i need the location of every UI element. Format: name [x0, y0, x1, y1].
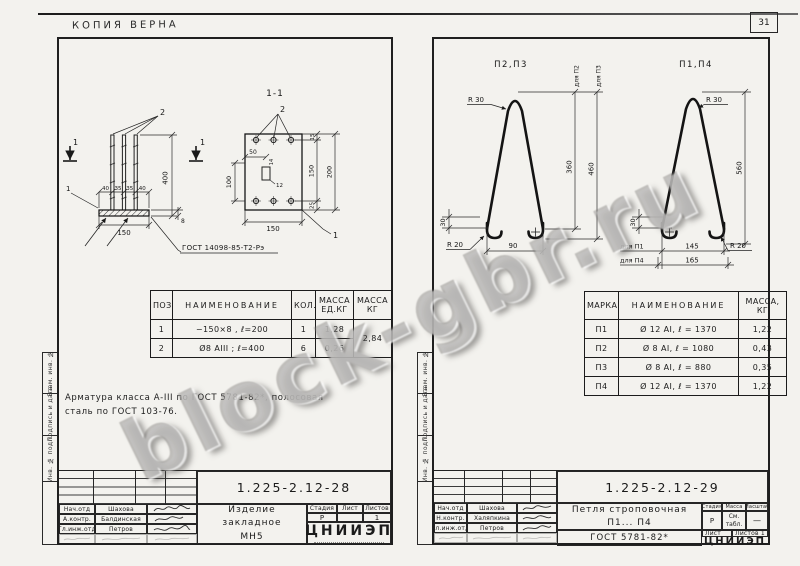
cell-pos: 1 [151, 320, 173, 339]
weld-note: ГОСТ 14098-85-Т2-Рэ [182, 244, 264, 252]
dim-30-left-lines [442, 209, 488, 234]
signer-role: Н.контр. [434, 513, 467, 523]
callout-plate: 1 [66, 185, 70, 193]
sheets-value: 1 [363, 513, 391, 522]
loop-right-label: П1,П4 [679, 60, 713, 70]
signature [147, 514, 197, 524]
drawing-title-line2: МН5 [240, 531, 263, 545]
scanned-drawing-sheet: КОПИЯ ВЕРНА 31 [0, 0, 800, 566]
signature [517, 513, 557, 523]
dim-400: 400 [162, 171, 170, 184]
left-margin-stamp: Взам. инв. № Подпись и дата Инв. № подл. [42, 352, 57, 545]
signature-scribble [521, 504, 553, 512]
table-row: П4 Ø 12 АI, ℓ = 1370 1,22 [585, 377, 787, 396]
cell-mark: П3 [585, 358, 619, 377]
dim-14: 14 [269, 159, 275, 165]
dim-360: 360 [566, 160, 574, 173]
signature-grid: Нач.отд Шахова А.контр. Балдинская Гл.ин… [59, 504, 197, 544]
col-header-qty: КОЛ. [292, 291, 316, 320]
material-note-line2: сталь по ГОСТ 103-76. [65, 405, 385, 419]
signature [517, 523, 557, 533]
embedded-part-drawing: 2 1 1 400 [59, 39, 395, 279]
faint-scribble [101, 536, 141, 542]
drawing-title-cell: Петля строповочная П1... П4 [557, 503, 702, 530]
cell-mass: 0,35 [739, 358, 787, 377]
drawing-title-cell: Изделие закладное МН5 [197, 504, 307, 544]
margin-label-podpis: Подпись и дата [47, 386, 54, 441]
dim-12-tick [270, 180, 275, 184]
signer-name: Шахова [467, 503, 517, 513]
dim-40b: 40 [139, 186, 146, 192]
faint-row-cell [95, 534, 147, 544]
signer-name: Петров [467, 523, 517, 533]
dim-460: 460 [588, 162, 596, 175]
scale-value: — [746, 511, 768, 530]
sheet-number-box: 31 [750, 12, 778, 33]
stage-value: Р [307, 513, 337, 522]
cell-name: Ø8 АIII ; ℓ=400 [173, 339, 292, 358]
anchor-bars [110, 135, 139, 210]
signature-grid: Нач.отд Шахова Н.контр. Халяпкина Гл.инж… [434, 503, 557, 546]
radius-30-left: R 30 [468, 96, 484, 104]
org-name: ЦНИИЭП [305, 523, 393, 539]
table-row: П3 Ø 8 АI, ℓ = 880 0,35 [585, 358, 787, 377]
signer-role: Нач.отд [59, 504, 95, 514]
mass-value: См. табл. [722, 511, 746, 530]
cell-mass: 0,43 [739, 339, 787, 358]
dim-150-right: 150 [308, 165, 316, 177]
right-page-frame: П2,П3 П1,П4 R 30 360 [432, 37, 770, 545]
cell-name: Ø 12 АI, ℓ = 1370 [619, 320, 739, 339]
dim-560-lines [702, 89, 751, 247]
doc-number-cell: 1.225-2.12-28 [197, 471, 391, 504]
revision-grid [434, 471, 557, 504]
dim-165: 165 [685, 257, 698, 265]
dim-145: 145 [685, 243, 698, 251]
loop-left-hook-cross [531, 228, 540, 237]
cell-total-mass: 2,84 [354, 320, 392, 358]
plan-callout-plate-leader [302, 210, 331, 234]
signature-scribble [521, 514, 553, 522]
dim-35a: 35 [115, 186, 122, 192]
loop-left-label: П2,П3 [494, 60, 528, 70]
org-fineprint [314, 539, 384, 543]
cell-unit-mass: 1,28 [316, 320, 354, 339]
margin-label-inv: Инв. № подл. [422, 435, 429, 482]
radius-20-left-leader [470, 236, 484, 250]
dim-200: 200 [326, 166, 334, 178]
faint-scribble [522, 535, 552, 541]
table-row: П2 Ø 8 АI, ℓ = 1080 0,43 [585, 339, 787, 358]
loop-right-hook-cross [665, 228, 674, 237]
drawing-title-line1: Изделие закладное [198, 504, 306, 531]
radius-20-left: R 20 [447, 241, 463, 249]
dim-150-bottom: 150 [266, 225, 279, 233]
loop-right-wire [662, 99, 724, 238]
radius-30-left-leader [491, 105, 506, 110]
drawing-title-line1: Петля строповочная [572, 504, 687, 517]
dim-90: 90 [509, 242, 518, 250]
org-cell: ЦНИИЭП [702, 537, 768, 546]
cell-name: Ø 8 АI, ℓ = 1080 [619, 339, 739, 358]
section-view-title: 1-1 [266, 89, 284, 99]
dim-15: 15 [310, 133, 316, 140]
dim-150-elev-lines [96, 216, 152, 229]
plan-center-hole [262, 167, 270, 180]
signature [517, 503, 557, 513]
plan-callout-bars: 2 [280, 105, 285, 114]
table-row: 1 −150×8 , ℓ=200 1 1,28 2,84 [151, 320, 392, 339]
faint-row-cell [434, 533, 467, 543]
material-note-line1: Арматура класса А-III по ГОСТ 5781-82*, … [65, 391, 385, 405]
cell-mass: 1,22 [739, 377, 787, 396]
faint-scribble [472, 535, 512, 541]
cell-qty: 6 [292, 339, 316, 358]
dim-460-for-label: для П3 [596, 65, 603, 87]
faint-row-cell [467, 533, 517, 543]
dim-8-lines [151, 207, 183, 220]
sheets-label: Листов [363, 504, 391, 513]
right-marks-table: МАРКА НАИМЕНОВАНИЕ МАССА, КГ П1 Ø 12 АI,… [584, 291, 787, 396]
col-header-mass: МАССА КГ [354, 291, 392, 320]
signer-name: Халяпкина [467, 513, 517, 523]
col-header-mass: МАССА, КГ [739, 292, 787, 320]
doc-number: 1.225-2.12-28 [237, 480, 352, 495]
faint-row-cell [59, 534, 95, 544]
cell-mass: 1,22 [739, 320, 787, 339]
dim-8: 8 [181, 218, 185, 225]
col-header-pos: ПОЗ. [151, 291, 173, 320]
dim-100-lines [231, 160, 245, 204]
mass-label: Масса [722, 503, 746, 511]
dim-165-for-label: для П4 [620, 257, 644, 265]
scale-label: Масштаб [746, 503, 768, 511]
gost-cell: ГОСТ 5781-82* [557, 530, 702, 546]
dim-50: 50 [249, 149, 257, 156]
left-title-block: 1.225-2.12-28 Нач.отд Шахова А.контр. Ба… [59, 470, 391, 544]
doc-number-cell: 1.225-2.12-29 [557, 471, 768, 503]
table-row: П1 Ø 12 АI, ℓ = 1370 1,22 [585, 320, 787, 339]
section-mark-left [63, 146, 77, 161]
dim-360-for-label: для П2 [574, 65, 581, 87]
dim-35b: 35 [126, 186, 133, 192]
doc-number: 1.225-2.12-29 [605, 480, 720, 495]
callout-bars-leader [113, 116, 158, 134]
faint-scribble [438, 535, 464, 541]
dim-150b-lines [242, 210, 305, 226]
lifting-loop-drawing: П2,П3 П1,П4 R 30 360 [434, 39, 772, 279]
section-mark-right [189, 146, 203, 161]
material-note: Арматура класса А-III по ГОСТ 5781-82*, … [65, 391, 385, 419]
col-header-name: НАИМЕНОВАНИЕ [173, 291, 292, 320]
stage-label: Стадия [307, 504, 337, 513]
signer-name: Шахова [95, 504, 147, 514]
col-header-name: НАИМЕНОВАНИЕ [619, 292, 739, 320]
right-title-block: 1.225-2.12-29 Нач.отд Шахова Н.контр. Ха… [434, 470, 768, 546]
margin-label-inv: Инв. № подл. [47, 435, 54, 482]
dim-40a: 40 [102, 186, 109, 192]
drawing-title-line2: П1... П4 [607, 517, 651, 530]
signature-scribble [152, 525, 192, 533]
org-name: ЦНИИЭП [704, 536, 766, 547]
cell-mark: П2 [585, 339, 619, 358]
dim-12: 12 [276, 183, 283, 189]
stage-value: Р [702, 511, 722, 530]
stage-label: Стадия [702, 503, 722, 511]
dim-100: 100 [225, 176, 233, 188]
signer-role: А.контр. [59, 514, 95, 524]
margin-label-podpis: Подпись и дата [422, 386, 429, 441]
radius-20-right: R 20 [730, 242, 746, 250]
signature [147, 524, 197, 534]
dim-30-right: 30 [629, 218, 637, 226]
section-mark-left-label: 1 [73, 138, 78, 147]
cell-name: Ø 8 АI, ℓ = 880 [619, 358, 739, 377]
radius-30-right: R 30 [706, 96, 722, 104]
left-page-frame: 2 1 1 400 [57, 37, 393, 545]
callout-bars: 2 [160, 108, 165, 117]
dim-25: 25 [310, 202, 316, 209]
signature-scribble [152, 505, 192, 513]
cell-unit-mass: 0,26 [316, 339, 354, 358]
signer-name: Балдинская [95, 514, 147, 524]
weld-note-leader [151, 217, 181, 252]
signer-role: Гл.инж.отд [59, 524, 95, 534]
col-header-mark: МАРКА [585, 292, 619, 320]
faint-scribble [154, 536, 190, 542]
base-plate [99, 210, 149, 216]
left-parts-table: ПОЗ. НАИМЕНОВАНИЕ КОЛ. МАССА ЕД.КГ МАССА… [150, 290, 392, 358]
dim-30-left: 30 [439, 218, 447, 226]
signer-role: Гл.инж.отд [434, 523, 467, 533]
cell-name: −150×8 , ℓ=200 [173, 320, 292, 339]
dim-145-for-label: для П1 [620, 243, 644, 251]
callout-plate-leader [71, 193, 98, 208]
faint-scribble [63, 536, 91, 542]
loop-left-wire [487, 101, 543, 238]
org-cell: ЦНИИЭП [307, 522, 391, 544]
section-mark-right-label: 1 [200, 138, 205, 147]
signature [147, 504, 197, 514]
copy-note: КОПИЯ ВЕРНА [72, 19, 179, 31]
plan-callout-plate: 1 [333, 231, 338, 240]
gost-ref: ГОСТ 5781-82* [590, 533, 668, 543]
signature-scribble [521, 524, 553, 532]
right-margin-stamp: Взам. инв. № Подпись и дата Инв. № подл. [417, 352, 432, 545]
signer-role: Нач.отд [434, 503, 467, 513]
cell-pos: 2 [151, 339, 173, 358]
plan-holes [251, 135, 296, 206]
col-header-unit-mass: МАССА ЕД.КГ [316, 291, 354, 320]
revision-grid [59, 471, 197, 505]
signer-name: Петров [95, 524, 147, 534]
cell-mark: П1 [585, 320, 619, 339]
sheet-value [337, 513, 363, 522]
faint-row-cell [147, 534, 197, 544]
cell-mark: П4 [585, 377, 619, 396]
faint-row-cell [517, 533, 557, 543]
top-rule-line [38, 13, 798, 15]
cell-name: Ø 12 АI, ℓ = 1370 [619, 377, 739, 396]
signature-scribble [152, 515, 192, 523]
dim-560: 560 [736, 161, 744, 174]
cell-qty: 1 [292, 320, 316, 339]
sheet-label: Лист [337, 504, 363, 513]
sheet-number: 31 [758, 18, 769, 28]
dim-400-lines [140, 132, 177, 219]
